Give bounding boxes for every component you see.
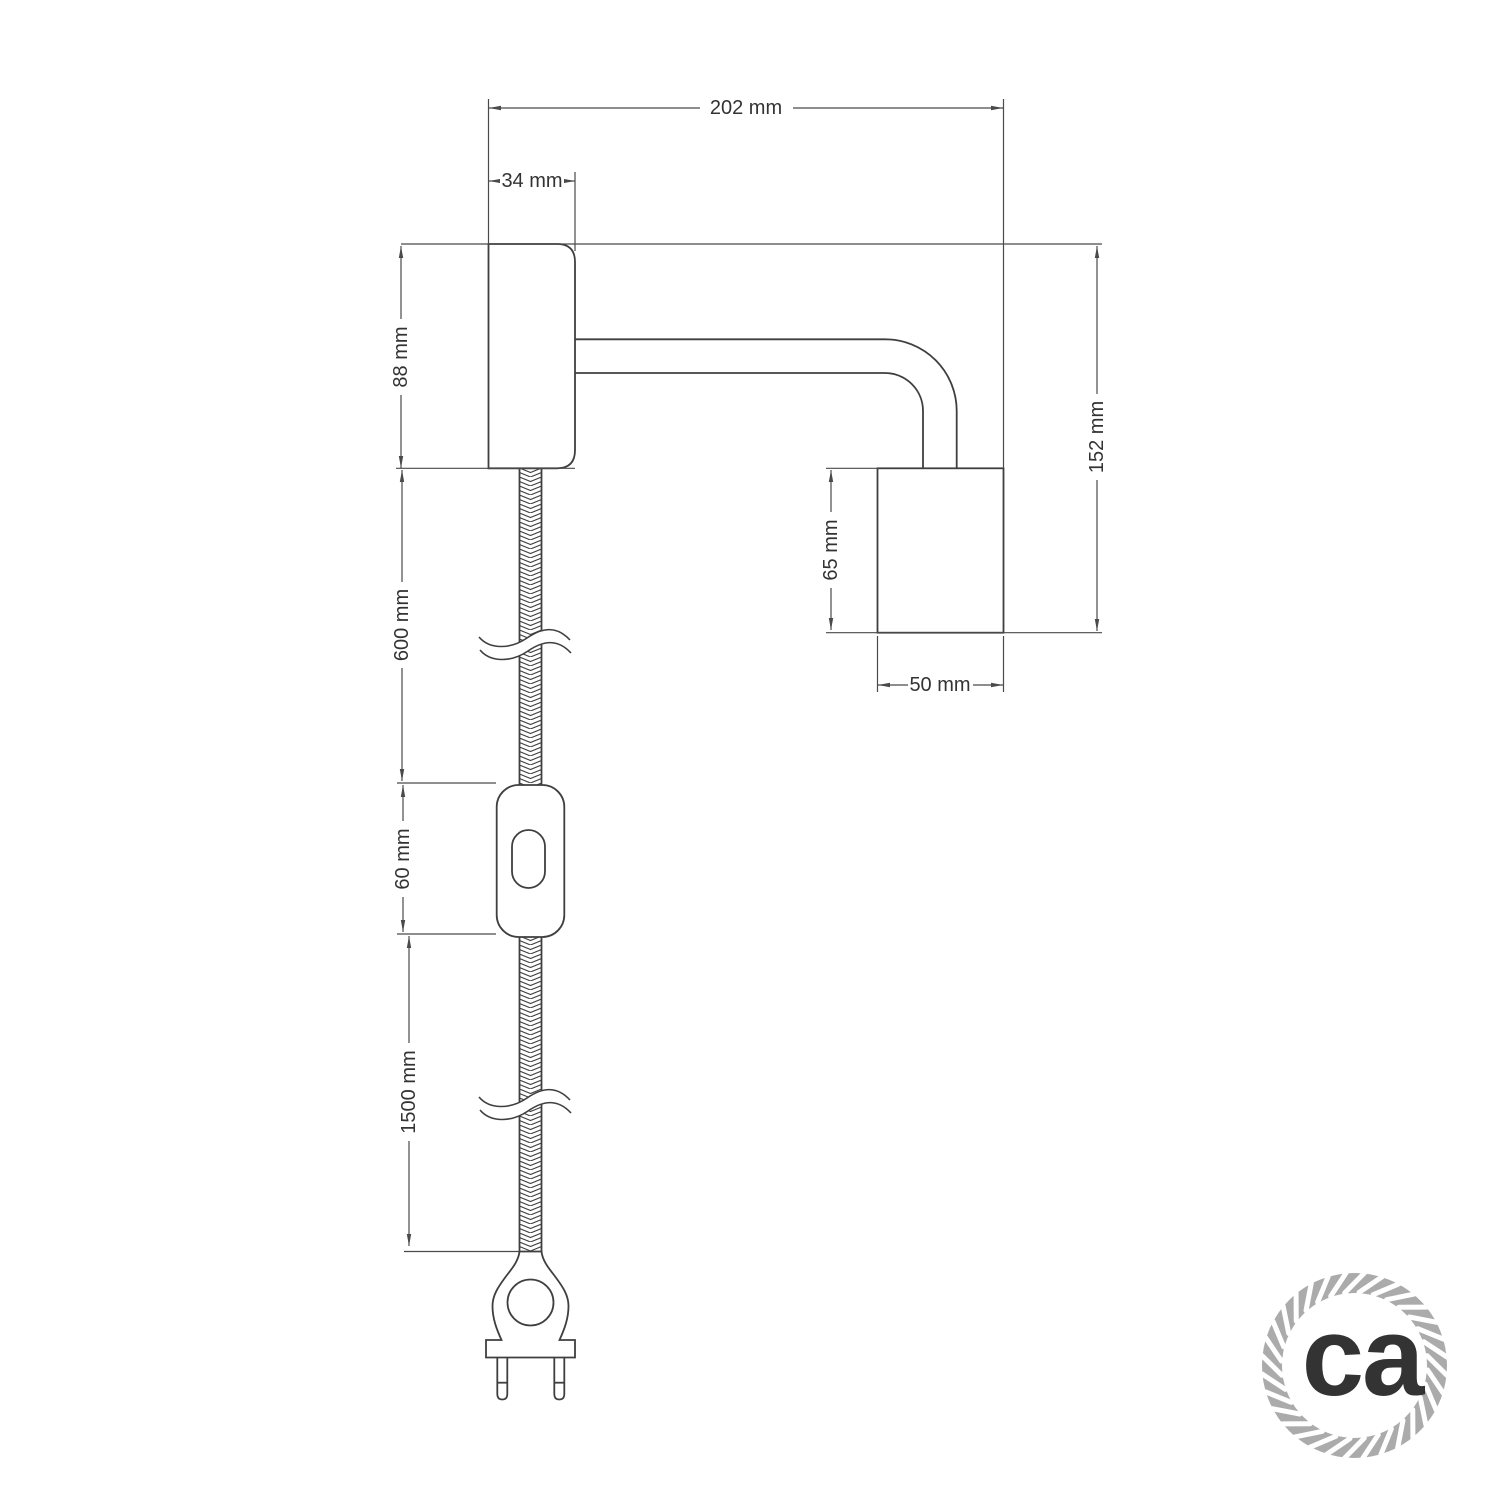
svg-text:88 mm: 88 mm	[390, 326, 412, 387]
dim-label-switch: 60 mm	[392, 821, 414, 897]
svg-text:34 mm: 34 mm	[501, 170, 562, 192]
dim-label-socket-width: 50 mm	[908, 674, 973, 696]
dim-label-cable-upper: 600 mm	[391, 582, 413, 668]
dim-label-socket-height: 65 mm	[820, 512, 842, 588]
lamp-product-drawing	[479, 244, 1004, 1400]
dim-label-cable-lower: 1500 mm	[398, 1043, 420, 1141]
technical-drawing-page: 202 mm 34 mm 88 mm 600 mm 60 mm 1500 mm	[0, 0, 1500, 1500]
logo-text: ca	[1302, 1294, 1425, 1419]
dim-label-overall-width: 202 mm	[700, 97, 793, 119]
svg-text:65 mm: 65 mm	[820, 519, 842, 580]
svg-text:202 mm: 202 mm	[710, 97, 782, 119]
svg-text:1500 mm: 1500 mm	[398, 1050, 420, 1133]
svg-text:60 mm: 60 mm	[392, 828, 414, 889]
bent-arm	[575, 339, 957, 467]
lamp-socket	[878, 468, 1004, 632]
svg-text:600 mm: 600 mm	[391, 589, 413, 661]
dim-label-mount-width: 34 mm	[500, 170, 564, 192]
lamp-dimension-diagram: 202 mm 34 mm 88 mm 600 mm 60 mm 1500 mm	[0, 0, 1500, 1500]
switch-body	[497, 785, 565, 937]
svg-text:50 mm: 50 mm	[909, 674, 970, 696]
wall-mount-body	[489, 244, 576, 468]
brand-logo: ca	[1262, 1273, 1447, 1458]
inline-switch	[497, 785, 565, 937]
power-plug	[486, 1252, 575, 1400]
plug-body	[486, 1252, 575, 1358]
plug-pin-left	[497, 1358, 507, 1400]
plug-pin-right	[554, 1358, 564, 1400]
dim-label-overall-height: 152 mm	[1086, 394, 1108, 480]
svg-text:152 mm: 152 mm	[1086, 401, 1108, 473]
dim-label-mount-height: 88 mm	[390, 319, 412, 395]
